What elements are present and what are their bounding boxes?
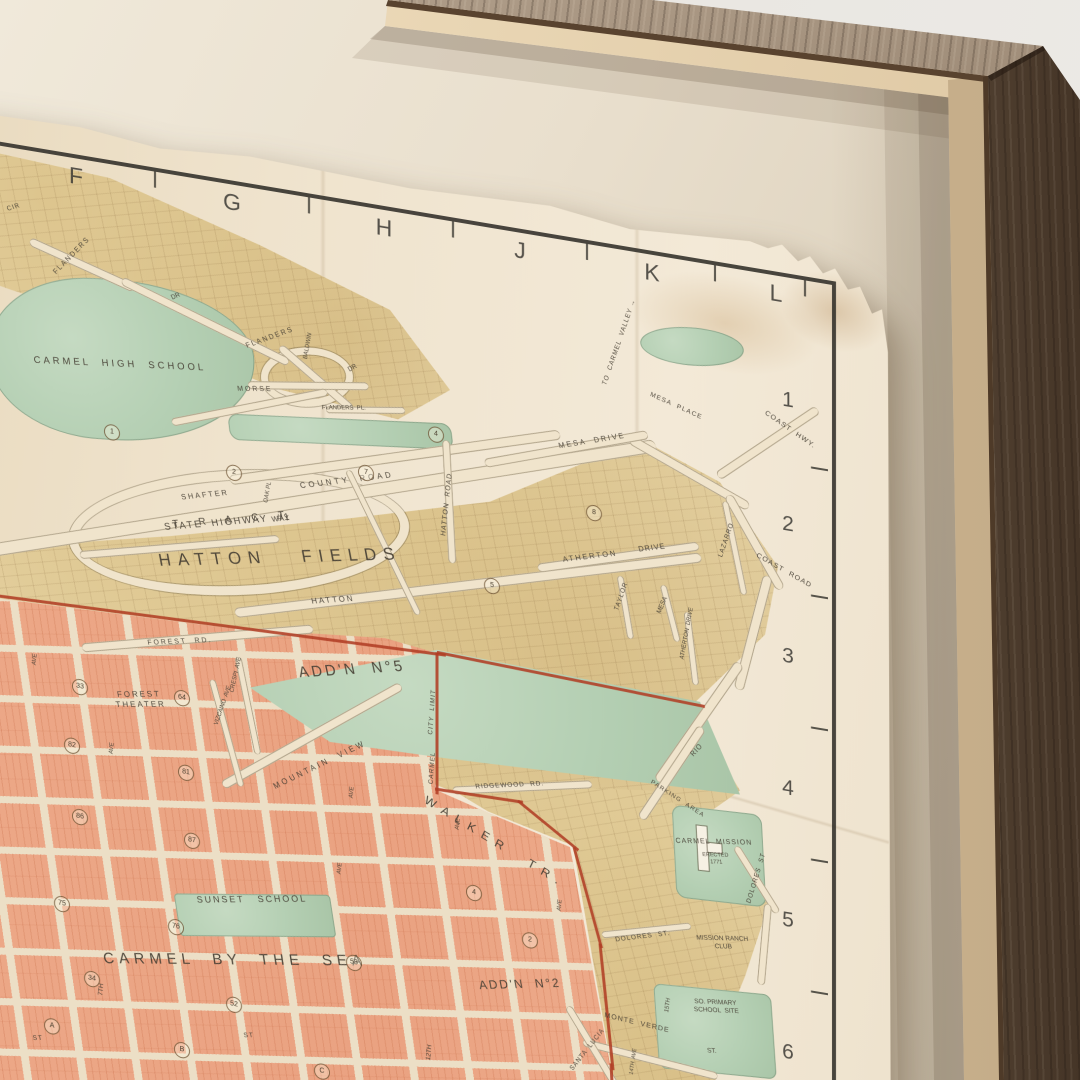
grid-tick	[308, 197, 310, 213]
street-label: ST	[32, 1035, 44, 1044]
street-label: AVE	[349, 786, 358, 799]
area-label: SUNSET SCHOOL	[196, 893, 308, 906]
grid-letter-L: L	[770, 279, 783, 308]
area-label: CARMEL BY THE SEA	[102, 949, 368, 971]
grid-tick	[804, 280, 806, 296]
street-label: MORSE	[237, 385, 274, 395]
grid-number-1: 1	[782, 388, 794, 414]
street-label: WAY	[270, 513, 291, 525]
framed-map-photograph: FGHJKL123456 CARMEL HIGH SCHOOLHATTON FI…	[0, 0, 1080, 1080]
grid-tick	[452, 221, 454, 237]
grid-number-3: 3	[782, 644, 794, 670]
grid-letter-H: H	[376, 213, 393, 243]
area-label: SO. PRIMARY SCHOOL SITE	[692, 998, 739, 1017]
area-label: MISSION RANCH CLUB	[696, 934, 750, 952]
street-label: AVE	[455, 818, 464, 831]
grid-letter-J: J	[514, 236, 526, 265]
street-label: ST	[243, 1032, 255, 1041]
street-label: AVE	[557, 899, 566, 912]
grid-number-4: 4	[782, 776, 794, 802]
grid-number-6: 6	[782, 1040, 794, 1066]
grid-number-2: 2	[782, 512, 794, 538]
grid-number-5: 5	[782, 908, 794, 934]
area-label: ADD'N N°2	[478, 976, 563, 994]
street-label: 12TH	[425, 1044, 435, 1062]
street-label: AVE	[337, 862, 346, 875]
grid-letter-K: K	[644, 258, 659, 288]
street-label: FLANDERS PL.	[321, 405, 366, 413]
area-label: FOREST THEATER	[113, 689, 167, 711]
area-label: ERECTED 1771	[702, 852, 730, 867]
grid-letter-G: G	[223, 188, 241, 218]
grid-tick	[154, 171, 156, 187]
grid-letter-F: F	[69, 162, 83, 191]
grid-tick	[586, 244, 588, 260]
grid-tick	[714, 265, 716, 281]
street-label: ST.	[707, 1047, 717, 1056]
street-label: AVE	[109, 742, 118, 755]
street-label: AVE	[32, 653, 41, 666]
